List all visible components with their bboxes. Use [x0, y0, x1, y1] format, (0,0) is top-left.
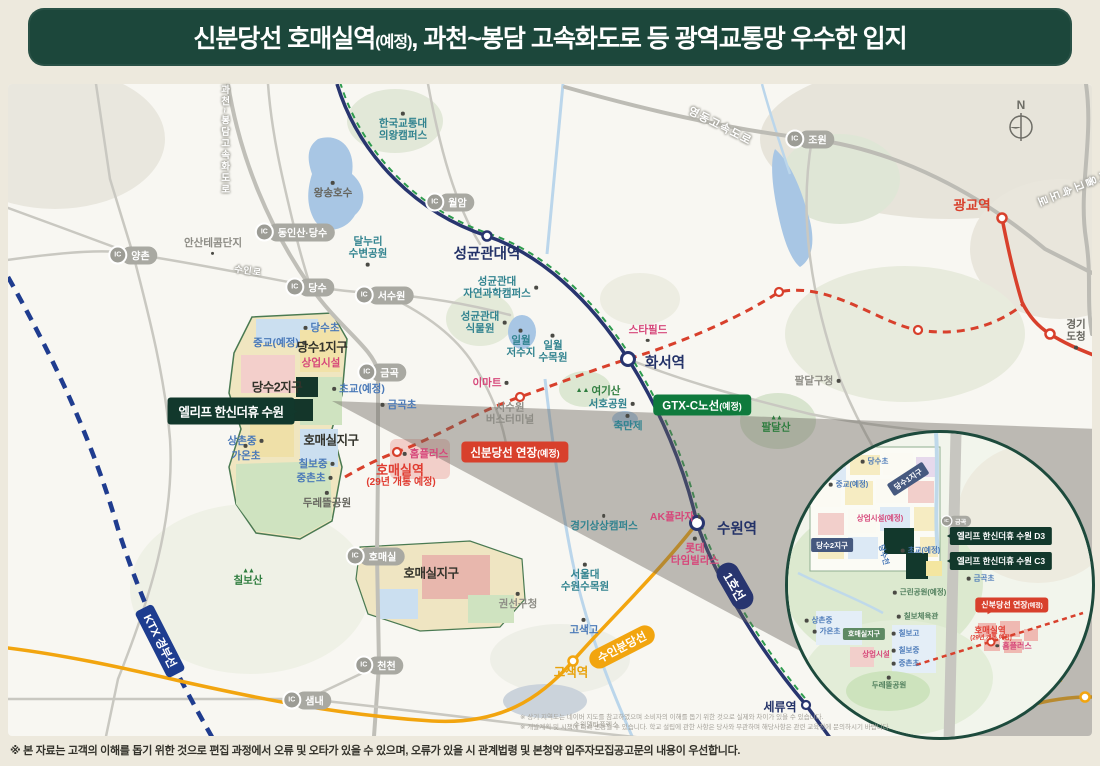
ic-badge: IC금곡: [941, 515, 972, 527]
poi-dot: [893, 591, 897, 595]
compass-icon: N: [1003, 98, 1039, 147]
inset-label: 호매실역: [974, 625, 1005, 635]
poi-dot: [995, 644, 999, 648]
inset-label: 상업시설(예정): [857, 515, 903, 524]
inset-label: 중촌초: [899, 660, 920, 669]
small-print-line1: ※ 상기 지역도는 네이버 지도를 참고하였으며 소비자의 이해를 돕기 위한 …: [520, 713, 1095, 723]
footer-disclaimer: ※ 본 자료는 고객의 이해를 돕기 위한 것으로 편집 과정에서 오류 및 오…: [10, 742, 740, 758]
inset-label: 칠보고: [899, 630, 920, 639]
inset-label: 두레뜰공원: [872, 682, 907, 691]
poi-dot: [887, 676, 891, 680]
inset-label: 상업시설: [862, 651, 890, 660]
inset-overlay: 당수초중교(예정)상업시설(예정)초교(예정)금곡초근린공원(예정)호매실역(2…: [788, 433, 1095, 740]
inset-label: 근린공원(예정): [900, 589, 946, 598]
inset-label: 당수초: [868, 458, 889, 467]
inset-label: 당수천: [876, 544, 890, 566]
callout-pointer: [943, 557, 954, 565]
inset-label: 중교(예정): [836, 481, 869, 490]
poi-dot: [805, 619, 809, 623]
map-small-print: ※ 상기 지역도는 네이버 지도를 참고하였으며 소비자의 이해를 돕기 위한 …: [520, 713, 1095, 733]
inset-label: 칠보체육관: [904, 613, 939, 622]
inset-shinbundang-extension-badge: 신분당선 연장(예정): [975, 598, 1048, 613]
inset-label: 칠보중: [899, 647, 920, 656]
station-marker: [775, 288, 783, 296]
inset-label: 초교(예정): [908, 547, 941, 556]
poi-dot: [829, 483, 833, 487]
page-title: 신분당선 호매실역(예정), 과천~봉담 고속화도로 등 광역교통망 우수한 입…: [193, 19, 906, 55]
station-marker: [998, 214, 1007, 223]
station-marker: [569, 657, 578, 666]
poi-dot: [892, 662, 896, 666]
inset-label: 가온초: [820, 628, 841, 637]
station-marker: [691, 517, 704, 530]
station-marker: [622, 353, 635, 366]
station-marker: [483, 232, 492, 241]
inset-label: 금곡초: [974, 575, 995, 584]
inset-project-callout: 엘리프 한신더휴 수원 C3: [950, 552, 1052, 570]
page: { "header": { "t1": "신분당선 호매실역", "sub": …: [0, 0, 1100, 766]
station-marker: [393, 448, 401, 456]
station-marker: [516, 393, 524, 401]
poi-dot: [967, 577, 971, 581]
station-marker: [1046, 330, 1055, 339]
detail-inset-circle: 당수초중교(예정)상업시설(예정)초교(예정)금곡초근린공원(예정)호매실역(2…: [785, 430, 1095, 740]
ic-label: 금곡: [949, 515, 972, 526]
station-marker: [914, 326, 922, 334]
inset-label: 홈플러스: [1002, 641, 1031, 650]
inset-label: 상촌중: [812, 617, 833, 626]
poi-dot: [861, 460, 865, 464]
callout-pointer: [943, 532, 954, 540]
poi-dot: [892, 649, 896, 653]
poi-dot: [901, 549, 905, 553]
small-print-line2: ※ 개발계획 및 시책에 따라 변동될 수 있습니다. 학교 설립에 관한 사항…: [520, 723, 1095, 733]
inset-district-badge: 호매실지구: [843, 628, 885, 640]
inset-district-badge: 당수2지구: [811, 538, 853, 552]
ic-icon: IC: [941, 515, 953, 527]
inset-district-badge: 당수1지구: [887, 462, 930, 496]
poi-dot: [813, 630, 817, 634]
poi-dot: [897, 615, 901, 619]
inset-project-callout: 엘리프 한신더휴 수원 D3: [950, 527, 1052, 545]
poi-dot: [892, 632, 896, 636]
compass-n-label: N: [1003, 98, 1039, 112]
header-banner: 신분당선 호매실역(예정), 과천~봉담 고속화도로 등 광역교통망 우수한 입…: [28, 8, 1072, 66]
